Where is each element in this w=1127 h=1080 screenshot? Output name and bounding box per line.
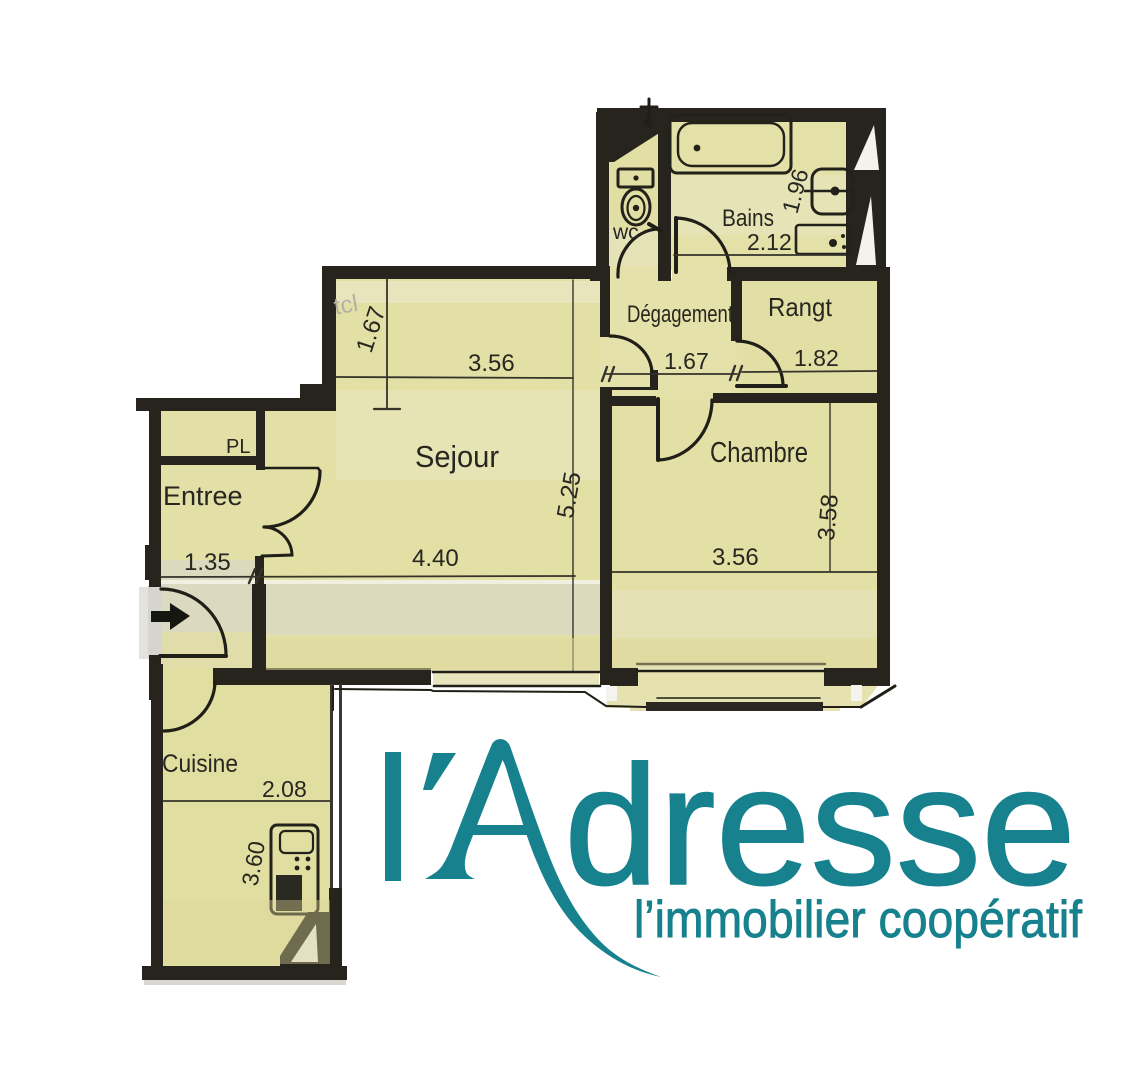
svg-text:Dégagement: Dégagement (627, 301, 733, 328)
svg-text:PL: PL (226, 436, 250, 458)
svg-text:Chambre: Chambre (710, 437, 808, 469)
svg-text:1.67: 1.67 (664, 348, 709, 374)
svg-text:2.12: 2.12 (747, 229, 792, 255)
svg-text:tcl: tcl (332, 290, 360, 321)
svg-text:1.35: 1.35 (184, 549, 231, 576)
svg-text:l’immobilier coopératif: l’immobilier coopératif (634, 891, 1082, 949)
svg-text:4.40: 4.40 (412, 545, 459, 572)
svg-text:3.56: 3.56 (712, 544, 759, 571)
svg-text:2.08: 2.08 (262, 776, 307, 802)
svg-text:wc: wc (612, 221, 639, 244)
svg-text:Sejour: Sejour (415, 439, 499, 474)
svg-text:3.56: 3.56 (468, 350, 515, 377)
svg-text:Entree: Entree (163, 481, 243, 511)
svg-text:1.82: 1.82 (794, 345, 839, 371)
svg-text:3.58: 3.58 (813, 493, 844, 542)
svg-text:Cuisine: Cuisine (162, 750, 238, 778)
svg-text:Rangt: Rangt (768, 292, 833, 322)
svg-text:Bains: Bains (722, 205, 774, 232)
